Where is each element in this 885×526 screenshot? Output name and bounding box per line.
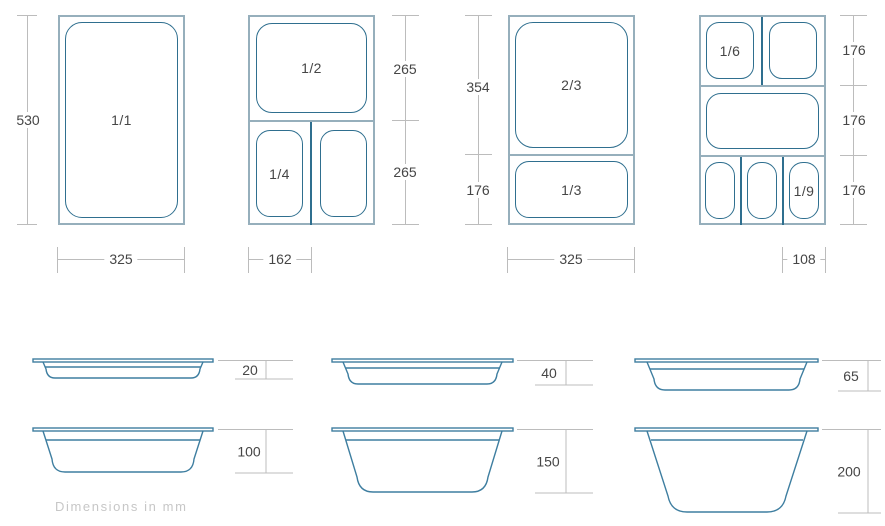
gn-1-4-pan-left: 1/4 (256, 130, 303, 217)
gn-1-9-pan-1 (705, 162, 735, 219)
pan65-body (647, 362, 807, 390)
gn-sixth-vdivider (761, 17, 763, 85)
dimensions-note: Dimensions in mm (55, 499, 188, 514)
dim-265-top-text: 265 (388, 61, 421, 77)
dim-150-text: 150 (536, 454, 560, 470)
pan200-flange (635, 428, 818, 431)
dim-108-text: 108 (787, 251, 820, 267)
dim-354-tick-middle (465, 154, 492, 155)
pan20-body (43, 362, 203, 378)
gn-1-1-label: 1/1 (111, 112, 132, 128)
gn-1-6-pan-left: 1/6 (706, 22, 754, 79)
pan100-flange (33, 428, 213, 431)
dim-176-bottom-text: 176 (837, 182, 870, 198)
gn-ninth-hdivider (699, 155, 826, 157)
dim-100-text: 100 (237, 444, 261, 460)
dim-162-tick-left (248, 247, 249, 273)
gn-1-9-label: 1/9 (794, 183, 815, 199)
dim-265-tick-middle (392, 120, 419, 121)
dim-176-top-text: 176 (837, 42, 870, 58)
gn-1-6-pan-right (769, 22, 817, 79)
gn-2-3-pan: 2/3 (515, 22, 628, 148)
dim-354-tick-bottom (465, 224, 492, 225)
pan65-flange (635, 359, 818, 362)
gn-1-9-pan-3: 1/9 (789, 162, 819, 219)
dim-530-text: 530 (11, 112, 44, 128)
pan40-body (343, 362, 502, 384)
dim-325b-tick-left (507, 247, 508, 273)
gn-sixth-hdivider (699, 85, 826, 87)
gn-1-3-pan: 1/3 (515, 161, 628, 218)
dim-176-tick-2 (840, 85, 867, 86)
gn-ninth-vdivider-right (782, 157, 784, 225)
dim-176-tick-4 (840, 224, 867, 225)
dim-176-tick-3 (840, 155, 867, 156)
gn-1-3-pan-wide (706, 93, 819, 149)
dim-530-tick-top (17, 15, 37, 16)
dim-162-tick-right (311, 247, 312, 273)
gn-1-4-pan-right (320, 130, 367, 217)
gn-2-3-label: 2/3 (561, 77, 582, 93)
gn-quarter-vdivider (310, 122, 312, 225)
dim-325-text: 325 (104, 251, 137, 267)
dim-200-text: 200 (837, 464, 861, 480)
dim-265-tick-bottom (392, 224, 419, 225)
gn-1-6-label: 1/6 (720, 43, 741, 59)
pan200-body (647, 431, 807, 512)
dim-325b-text: 325 (554, 251, 587, 267)
gastronorm-diagram: 1/1 530 325 1/2 1/4 265 265 162 2/3 1/3 … (0, 0, 885, 526)
dim-65-text: 65 (843, 368, 859, 384)
gn-1-9-pan-2 (747, 162, 777, 219)
dim-176-tick-1 (840, 15, 867, 16)
dim-354-text: 354 (461, 79, 494, 95)
pan40-flange (332, 359, 513, 362)
gn-1-2-label: 1/2 (301, 60, 322, 76)
gn-1-1-pan: 1/1 (65, 22, 178, 218)
dim-265-bottom-text: 265 (388, 164, 421, 180)
pan100-body (43, 431, 203, 472)
dim-325b-tick-right (634, 247, 635, 273)
dim-176-middle-text: 176 (837, 112, 870, 128)
dim-325-tick-right (184, 247, 185, 273)
dim-530-tick-bottom (17, 224, 37, 225)
gn-ninth-vdivider-left (740, 157, 742, 225)
pan20-flange (33, 359, 213, 362)
dim-354-tick-top (465, 15, 492, 16)
dim-108-tick-right (825, 247, 826, 273)
dim-162-text: 162 (263, 251, 296, 267)
dim-265-tick-top (392, 15, 419, 16)
gn-1-3-label: 1/3 (561, 182, 582, 198)
dim-40-text: 40 (541, 365, 557, 381)
gn-1-2-pan: 1/2 (256, 23, 367, 113)
dim-108-tick-left (782, 247, 783, 273)
dim-176-left-text: 176 (461, 182, 494, 198)
dim-20-text: 20 (242, 362, 258, 378)
dim-325-tick-left (57, 247, 58, 273)
gn-1-4-label: 1/4 (269, 166, 290, 182)
pan150-flange (332, 428, 513, 431)
gn-twothird-third-hdivider (508, 154, 635, 156)
